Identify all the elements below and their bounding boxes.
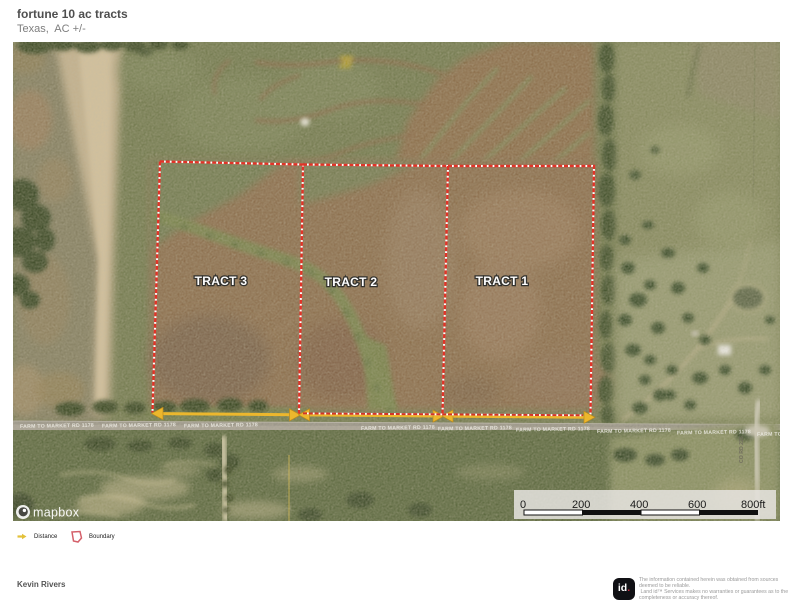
svg-text:TRACT 1: TRACT 1 [476, 274, 529, 288]
svg-text:mapbox: mapbox [33, 506, 80, 520]
svg-text:CO RD 225: CO RD 225 [739, 436, 745, 463]
svg-text:600: 600 [688, 499, 706, 511]
svg-text:400: 400 [630, 499, 648, 511]
svg-text:0: 0 [520, 499, 526, 511]
svg-text:FARM TO: FARM TO [757, 432, 780, 438]
svg-text:800ft: 800ft [741, 499, 765, 511]
svg-text:TRACT 2: TRACT 2 [325, 275, 378, 289]
svg-text:TRACT 3: TRACT 3 [195, 274, 248, 288]
svg-text:200: 200 [572, 499, 590, 511]
